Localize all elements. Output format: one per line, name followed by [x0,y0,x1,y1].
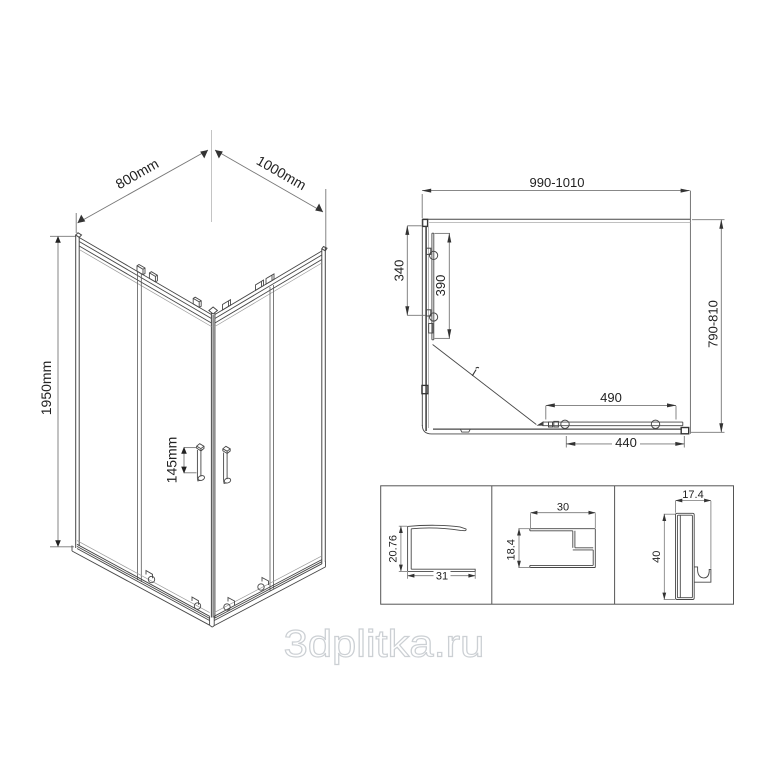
svg-text:40: 40 [651,551,663,563]
svg-text:340: 340 [392,260,407,282]
svg-text:145mm: 145mm [164,437,180,484]
svg-text:390: 390 [433,275,448,297]
svg-text:30: 30 [557,502,569,514]
svg-text:440: 440 [615,435,637,450]
svg-text:1950mm: 1950mm [38,361,54,415]
svg-text:3dplitka.ru: 3dplitka.ru [284,622,485,665]
svg-text:18.4: 18.4 [506,539,518,560]
svg-text:790-810: 790-810 [706,300,721,348]
svg-text:490: 490 [600,390,622,405]
svg-text:20.76: 20.76 [388,535,400,563]
svg-text:17.4: 17.4 [682,489,703,501]
svg-text:990-1010: 990-1010 [530,175,585,190]
svg-text:31: 31 [436,571,448,583]
